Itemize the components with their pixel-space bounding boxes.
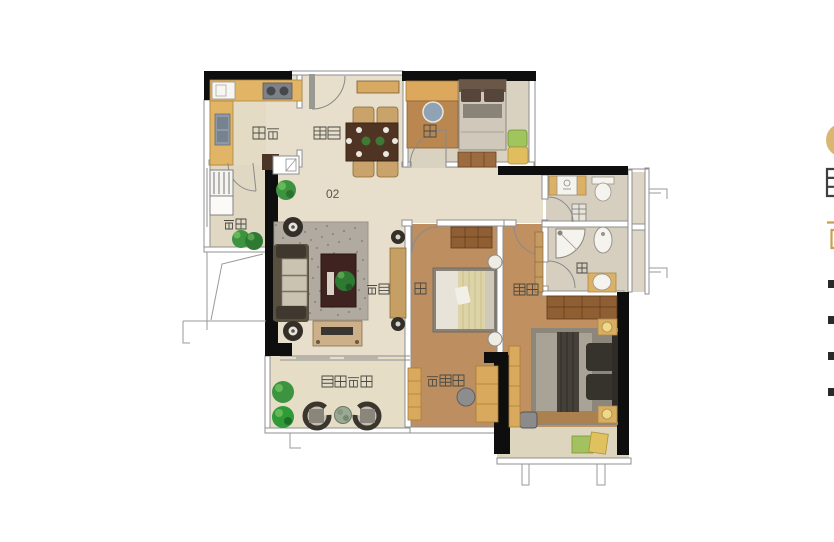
svg-text:02: 02 xyxy=(326,187,340,201)
